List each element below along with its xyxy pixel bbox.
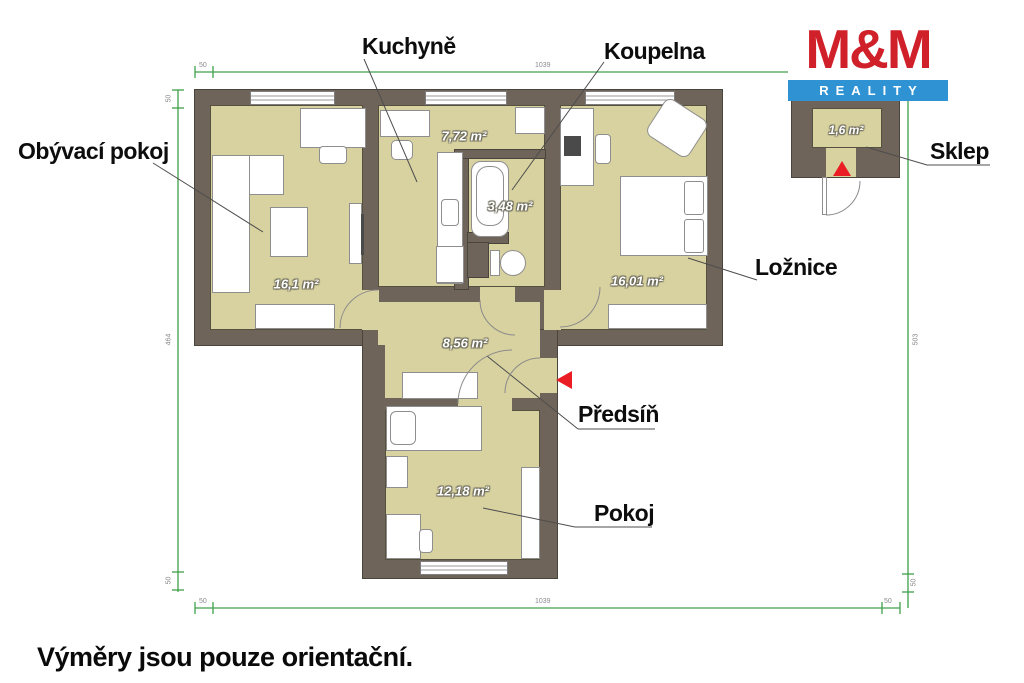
living-chair <box>319 146 347 164</box>
living-cabinet <box>255 304 335 329</box>
dim-left-small-bot: 50 <box>165 577 172 585</box>
living-desk <box>300 108 366 148</box>
window-bedroom <box>585 91 675 105</box>
label-bedroom: Ložnice <box>755 254 837 281</box>
label-child: Pokoj <box>594 500 654 527</box>
area-kitchen: 7,72 m² <box>442 129 487 144</box>
label-living: Obývací pokoj <box>18 138 169 165</box>
label-hallway: Předsíň <box>578 401 659 428</box>
window-living <box>250 91 335 105</box>
area-bathroom: 3,48 m² <box>488 199 533 214</box>
dim-left-small-top: 50 <box>165 95 172 103</box>
bedroom-chair <box>595 134 611 164</box>
logo-title: M&M <box>788 20 948 80</box>
tv <box>361 214 364 255</box>
dim-top-span: 1039 <box>535 62 551 69</box>
area-bedroom: 16,01 m² <box>611 274 663 289</box>
kitchen-table <box>380 110 430 137</box>
door-opening-bedroom <box>544 290 561 330</box>
fridge <box>515 107 545 134</box>
child-desk <box>386 514 421 559</box>
area-child: 12,18 m² <box>437 484 489 499</box>
single-pillow <box>390 411 416 445</box>
label-kitchen: Kuchyně <box>362 33 456 60</box>
kitchen-sink <box>441 199 459 226</box>
door-opening-cellar <box>826 148 856 177</box>
toilet-bowl <box>500 250 526 276</box>
dim-top-small-left: 50 <box>199 62 207 69</box>
logo-subtitle: REALITY <box>788 80 948 101</box>
pillow-1 <box>684 181 704 215</box>
sofa-vertical <box>212 155 250 293</box>
dim-left-span: 464 <box>165 334 172 346</box>
dim-bottom-small-left: 50 <box>199 598 207 605</box>
hall-cabinet <box>402 372 478 399</box>
computer <box>564 136 581 156</box>
nightstand <box>386 456 408 488</box>
toilet-tank <box>490 250 500 276</box>
wc-partition-v <box>468 243 488 277</box>
area-hallway: 8,56 m² <box>443 336 488 351</box>
window-child <box>420 561 508 575</box>
child-chair <box>419 529 433 553</box>
kitchen-chair <box>391 140 413 160</box>
dim-right-small-bot: 50 <box>910 579 917 587</box>
footer-disclaimer: Výměry jsou pouze orientační. <box>37 642 413 673</box>
entrance-arrow-icon <box>556 371 572 389</box>
bathtub-inner <box>476 166 504 226</box>
area-living: 16,1 m² <box>274 277 319 292</box>
door-opening-living <box>362 290 379 330</box>
area-cellar: 1,6 m² <box>829 123 864 137</box>
dim-right-span: 503 <box>912 334 919 346</box>
window-kitchen <box>425 91 507 105</box>
label-cellar: Sklep <box>930 138 989 165</box>
door-opening-bathroom <box>480 287 515 302</box>
coffee-table <box>270 207 308 257</box>
floorplan-canvas: 16,1 m² 7,72 m² 3,48 m² 16,01 m² 8,56 m²… <box>0 0 1024 683</box>
stove <box>436 246 464 283</box>
bathroom-top-wall <box>455 150 545 158</box>
label-bathroom: Koupelna <box>604 38 705 65</box>
pillow-2 <box>684 219 704 253</box>
bedroom-wardrobe <box>608 304 707 329</box>
dim-bottom-small-right: 50 <box>884 598 892 605</box>
cellar-door-leaf <box>822 177 827 215</box>
dim-bottom-span: 1039 <box>535 598 551 605</box>
child-wardrobe <box>521 467 540 559</box>
mm-reality-logo: M&M REALITY <box>788 20 948 101</box>
door-opening-entrance <box>540 358 557 393</box>
